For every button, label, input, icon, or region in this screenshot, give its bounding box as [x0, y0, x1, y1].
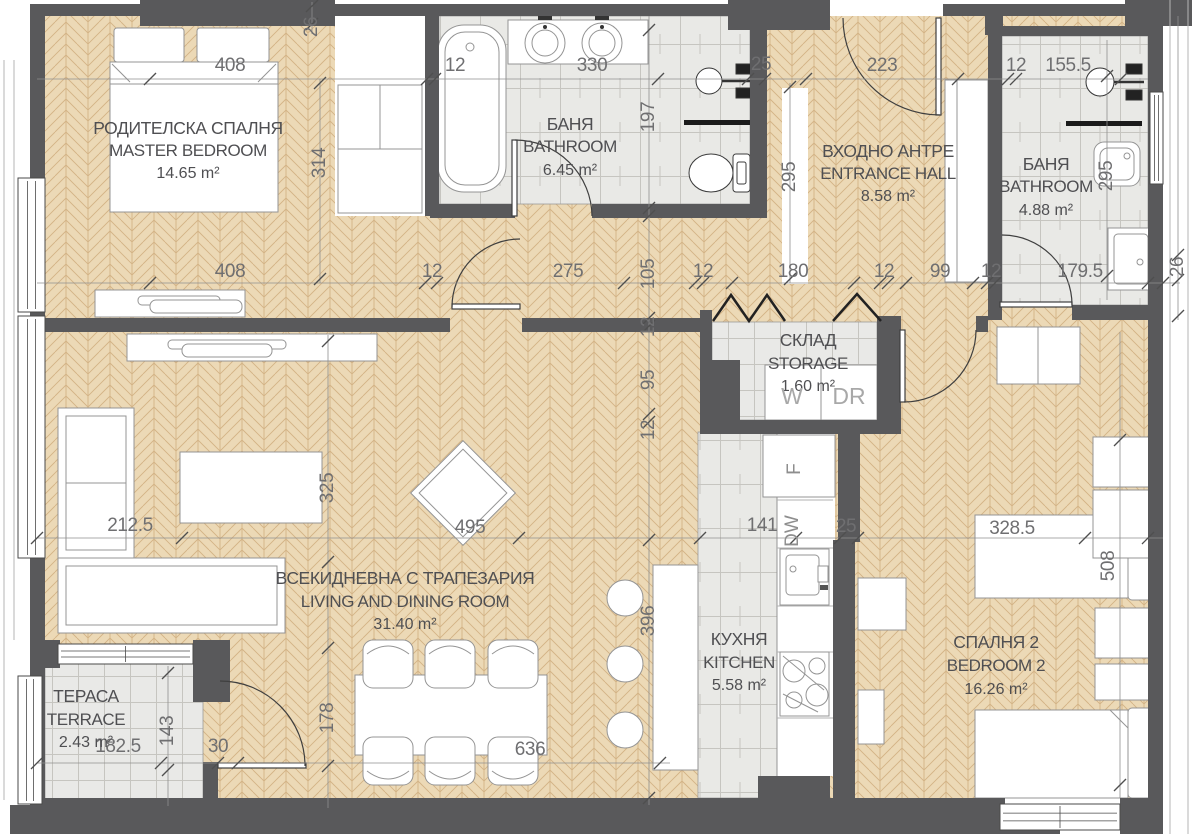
wall-segment: [758, 776, 830, 802]
dimension-label: 99: [930, 261, 950, 282]
wall-segment: [877, 316, 901, 424]
room-name-bg: ВХОДНО АНТРЕ: [822, 141, 954, 161]
facade-lines-right: [1170, 0, 1188, 834]
wall-segment: [522, 318, 712, 332]
room-area: 16.26 m²: [964, 681, 1028, 698]
bedroom2-dresser-b: [858, 690, 884, 744]
room-name-bg: ТЕРАСА: [53, 686, 119, 706]
dining-chair: [488, 640, 538, 688]
bedroom2-wardrobe-top: [997, 327, 1080, 384]
wall-segment: [700, 420, 901, 434]
dimension-label: 223: [867, 55, 898, 76]
room-area: 8.58 m²: [861, 188, 916, 205]
room-name-en: MASTER BEDROOM: [109, 141, 267, 160]
wall-segment: [943, 4, 1150, 16]
appliance-label-washer: W: [781, 383, 803, 409]
dimension-label: 328.5: [989, 518, 1035, 539]
room-name-en: ENTRANCE HALL: [820, 164, 956, 183]
shower-partition-2: [1066, 121, 1142, 126]
dimension-label: 295: [779, 162, 800, 193]
window: [18, 316, 45, 558]
wall-segment: [712, 360, 740, 422]
dimension-label: 12: [422, 261, 442, 282]
window: [1000, 804, 1120, 830]
room-name-en: BATHROOM: [523, 137, 617, 156]
window: [1150, 92, 1163, 184]
dimension-label: 178: [317, 703, 338, 734]
room-area: 31.40 m²: [373, 616, 437, 633]
dimension-label: 12: [693, 261, 713, 282]
wall-segment: [45, 318, 450, 332]
window: [18, 178, 45, 312]
room-name-bg: БАНЯ: [547, 114, 593, 134]
dimension-label: 95: [638, 370, 659, 390]
dimension-label: 508: [1098, 551, 1119, 582]
dimension-label: 325: [317, 473, 338, 504]
dimension-label: 12: [1006, 55, 1026, 76]
dimension-label: 275: [553, 261, 584, 282]
wall-segment: [10, 805, 230, 834]
room-name-en: BEDROOM 2: [947, 656, 1045, 675]
dining-chair: [363, 640, 413, 688]
dimension-label: 396: [638, 606, 659, 637]
wall-segment: [203, 762, 218, 806]
dimension-label: 12: [638, 317, 659, 337]
dimension-label: 330: [577, 55, 608, 76]
bedroom2-dresser-a: [858, 578, 906, 630]
shower-partition-1: [684, 120, 752, 125]
bar-stools: [607, 580, 643, 748]
dimension-label: 26: [301, 17, 322, 37]
room-name-en: LIVING AND DINING ROOM: [301, 592, 509, 611]
dining-chair: [425, 737, 475, 785]
dimension-label: 636: [515, 739, 546, 760]
wall-segment: [700, 310, 712, 434]
room-area: 4.88 m²: [1019, 202, 1074, 219]
room-name-bg: СКЛАД: [780, 330, 837, 350]
dimension-label: 180: [778, 261, 809, 282]
wall-segment: [1002, 26, 1148, 36]
dimension-label: 143: [157, 716, 178, 747]
shower-tray: [1108, 228, 1154, 290]
dimension-label: 314: [309, 147, 330, 178]
appliance-label-fridge: F: [784, 463, 805, 475]
wall-segment: [1120, 798, 1163, 834]
master-wardrobe: [338, 85, 422, 213]
room-label-kitchen: КУХНЯKITCHEN5.58 m²: [703, 629, 775, 694]
facade-lines-left: [4, 60, 14, 800]
wall-segment: [592, 204, 758, 218]
dimension-label: 408: [215, 55, 246, 76]
dining-chair: [363, 737, 413, 785]
dimension-label: 295: [1096, 161, 1117, 192]
wall-segment: [193, 640, 230, 702]
appliance-label-dryer: DR: [832, 383, 865, 409]
window: [18, 676, 42, 804]
dimension-label: 12: [981, 261, 1001, 282]
room-name-bg: РОДИТЕЛСКА СПАЛНЯ: [93, 118, 282, 138]
wall-segment: [430, 204, 515, 218]
room-name-bg: БАНЯ: [1023, 154, 1069, 174]
stove: [780, 652, 829, 716]
dimension-label: 105: [638, 259, 659, 290]
wall-segment: [1072, 305, 1155, 320]
room-area: 14.65 m²: [156, 165, 220, 182]
room-name-en: STORAGE: [768, 354, 848, 373]
sideboard-bottom: [127, 334, 377, 361]
nightstand-1: [1095, 608, 1157, 658]
bathtub: [438, 25, 506, 192]
room-area: 2.43 m²: [59, 734, 114, 751]
appliance-label-dishwasher: DW: [782, 515, 803, 547]
wall-segment: [728, 0, 830, 30]
room-name-en: TERRACE: [47, 710, 125, 729]
kitchen-island: [653, 565, 698, 770]
room-name-bg: СПАЛНЯ 2: [953, 632, 1038, 652]
window: [58, 644, 193, 664]
dimension-label: 12: [874, 261, 894, 282]
room-name-bg: ВСЕКИДНЕВНА С ТРАПЕЗАРИЯ: [276, 568, 535, 588]
floor-plan-canvas: 408123302522312155.526314197295295408122…: [0, 0, 1192, 834]
bedroom2-wardrobe-right-a: [1093, 437, 1157, 487]
wall-segment: [833, 540, 855, 802]
toilet-1: [689, 154, 750, 192]
dimension-label: 25: [751, 54, 771, 75]
dimension-label: 408: [215, 261, 246, 282]
coffee-table: [180, 452, 322, 523]
room-name-bg: КУХНЯ: [711, 629, 767, 649]
dimension-label: 30: [208, 736, 228, 757]
dimension-label: 12: [638, 420, 659, 440]
room-name-en: KITCHEN: [703, 653, 775, 672]
kitchen-sink: [780, 549, 829, 605]
dimension-label: 495: [455, 517, 486, 538]
dining-chair: [425, 640, 475, 688]
room-name-en: BATHROOM: [999, 177, 1093, 196]
dimension-label: 212.5: [107, 515, 153, 536]
dimension-label: 155.5: [1045, 55, 1091, 76]
sideboard-top: [95, 290, 245, 317]
wall-segment: [976, 316, 988, 332]
floor-plan: 408123302522312155.526314197295295408122…: [0, 0, 1192, 834]
room-area: 6.45 m²: [543, 162, 598, 179]
dimension-label: 12: [445, 55, 465, 76]
nightstand-2: [1095, 664, 1157, 700]
dimension-label: 26: [1167, 257, 1188, 277]
bedroom2-wardrobe-right-b: [1093, 490, 1157, 558]
dimension-label: 141: [747, 515, 778, 536]
dimension-label: 197: [638, 102, 659, 133]
dimension-label: 25: [836, 516, 856, 537]
wall-segment: [1125, 0, 1192, 26]
bed-2b: [975, 708, 1156, 798]
wall-segment: [425, 16, 439, 216]
room-area: 5.58 m²: [712, 677, 767, 694]
dimension-label: 179.5: [1057, 261, 1103, 282]
wall-segment: [195, 812, 1060, 834]
